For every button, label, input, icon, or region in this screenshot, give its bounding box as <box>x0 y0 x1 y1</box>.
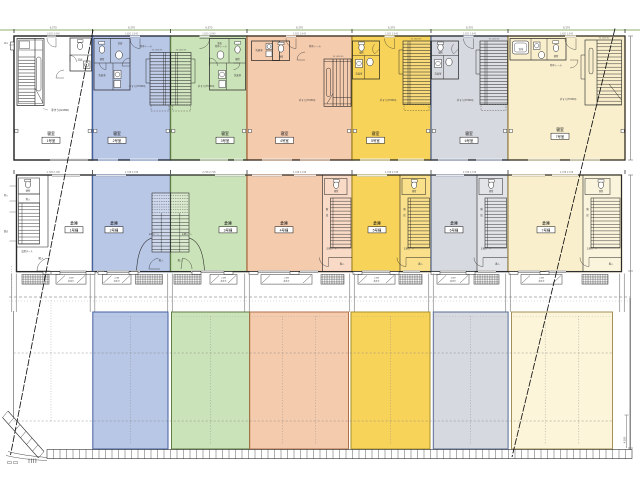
svg-text:搬入: 搬入 <box>178 258 183 262</box>
svg-text:6号室: 6号室 <box>465 138 474 143</box>
svg-text:1,820 3,640: 1,820 3,640 <box>560 32 574 35</box>
svg-text:90 1,820 90: 90 1,820 90 <box>411 39 422 41</box>
svg-text:3号室: 3号室 <box>221 138 230 143</box>
svg-text:2,728 2,728: 2,728 2,728 <box>202 171 216 174</box>
svg-text:2,728 2,728: 2,728 2,728 <box>385 171 399 174</box>
svg-text:90 1,820 90: 90 1,820 90 <box>333 56 344 58</box>
svg-text:5号棟: 5号棟 <box>373 228 382 233</box>
svg-text:洗面室: 洗面室 <box>234 73 242 77</box>
svg-text:2,728 2,728: 2,728 2,728 <box>293 171 307 174</box>
svg-text:2.5M: 2.5M <box>284 277 289 279</box>
svg-text:手すり(H=800): 手すり(H=800) <box>198 84 215 88</box>
svg-text:浴室: 浴室 <box>519 47 524 51</box>
svg-text:物干レール: 物干レール <box>215 44 228 48</box>
svg-text:1,820 3,640: 1,820 3,640 <box>202 32 216 35</box>
svg-text:1号棟: 1号棟 <box>70 228 79 233</box>
svg-text:寝室: 寝室 <box>221 131 229 136</box>
svg-text:6,370: 6,370 <box>128 26 135 30</box>
svg-text:寝室: 寝室 <box>113 131 121 136</box>
svg-text:手すり(H=800): 手すり(H=800) <box>299 98 316 102</box>
svg-text:寝室: 寝室 <box>47 131 55 136</box>
svg-text:6,370: 6,370 <box>50 26 57 30</box>
svg-text:5号室: 5号室 <box>371 138 380 143</box>
svg-text:寝室: 寝室 <box>372 131 380 136</box>
svg-text:倉庫: 倉庫 <box>373 221 381 226</box>
svg-text:1号室: 1号室 <box>47 138 56 143</box>
svg-text:洗面室: 洗面室 <box>98 73 106 77</box>
svg-text:90 1,820 90: 90 1,820 90 <box>152 50 163 52</box>
svg-text:2,728 2,728: 2,728 2,728 <box>125 171 139 174</box>
svg-text:寝室: 寝室 <box>556 127 564 132</box>
svg-text:6,370: 6,370 <box>296 26 303 30</box>
svg-text:7号棟: 7号棟 <box>542 228 551 233</box>
svg-text:2号室: 2号室 <box>113 138 122 143</box>
svg-text:物干レール: 物干レール <box>140 44 153 48</box>
svg-text:7号室: 7号室 <box>556 134 565 139</box>
svg-text:手すり(H=800): 手すり(H=800) <box>129 84 146 88</box>
svg-text:2.5M: 2.5M <box>69 277 74 279</box>
svg-text:2,728 2,728: 2,728 2,728 <box>560 171 574 174</box>
svg-text:倉庫: 倉庫 <box>450 221 458 226</box>
svg-text:2号棟: 2号棟 <box>110 228 119 233</box>
svg-text:90 1,820 90: 90 1,820 90 <box>176 50 187 52</box>
svg-text:手すり(H=800): 手すり(H=800) <box>380 98 397 102</box>
svg-text:搬入: 搬入 <box>159 258 164 262</box>
svg-text:6,370: 6,370 <box>466 26 473 30</box>
svg-text:2,728 2,728: 2,728 2,728 <box>47 171 61 174</box>
svg-text:90 1,820 90: 90 1,820 90 <box>489 39 500 41</box>
svg-text:手すり(H=800): 手すり(H=800) <box>560 97 577 101</box>
svg-text:6,370: 6,370 <box>205 26 212 30</box>
svg-text:物干レール: 物干レール <box>309 44 322 48</box>
svg-text:4,550: 4,550 <box>623 436 627 443</box>
svg-text:1,820 3,640: 1,820 3,640 <box>125 32 139 35</box>
svg-text:2.5M: 2.5M <box>221 277 226 279</box>
svg-text:1,820 3,640: 1,820 3,640 <box>385 32 399 35</box>
svg-text:手すり(H=800): 手すり(H=800) <box>51 108 69 112</box>
svg-text:物干レール: 物干レール <box>550 63 563 67</box>
svg-text:倉庫: 倉庫 <box>70 221 78 226</box>
svg-text:搬入: 搬入 <box>38 256 44 260</box>
svg-text:手すり(H=800): 手すり(H=800) <box>457 98 474 102</box>
svg-text:2.5M: 2.5M <box>539 277 544 279</box>
svg-text:倉庫: 倉庫 <box>110 221 118 226</box>
svg-text:2.5M: 2.5M <box>114 277 119 279</box>
svg-text:倉庫: 倉庫 <box>280 221 288 226</box>
svg-text:倉庫: 倉庫 <box>224 221 232 226</box>
svg-text:2.5M: 2.5M <box>451 277 456 279</box>
svg-text:1,820 3,640: 1,820 3,640 <box>293 32 307 35</box>
svg-text:倉庫: 倉庫 <box>542 221 550 226</box>
svg-text:6,370: 6,370 <box>388 26 395 30</box>
svg-text:6号棟: 6号棟 <box>450 228 459 233</box>
svg-text:90 1,820 90: 90 1,820 90 <box>599 38 610 40</box>
svg-text:2.5M: 2.5M <box>374 277 379 279</box>
svg-text:6,370: 6,370 <box>563 26 570 30</box>
svg-text:3号棟: 3号棟 <box>224 228 233 233</box>
svg-text:4号棟: 4号棟 <box>280 228 289 233</box>
svg-text:洗面: 洗面 <box>78 58 83 62</box>
svg-text:寝室: 寝室 <box>281 131 289 136</box>
svg-text:1,820 3,640: 1,820 3,640 <box>463 32 477 35</box>
svg-text:4号室: 4号室 <box>280 138 289 143</box>
svg-text:洗濯室: 洗濯室 <box>255 48 263 52</box>
svg-text:2,728 2,728: 2,728 2,728 <box>463 171 477 174</box>
svg-text:寝室: 寝室 <box>465 131 473 136</box>
